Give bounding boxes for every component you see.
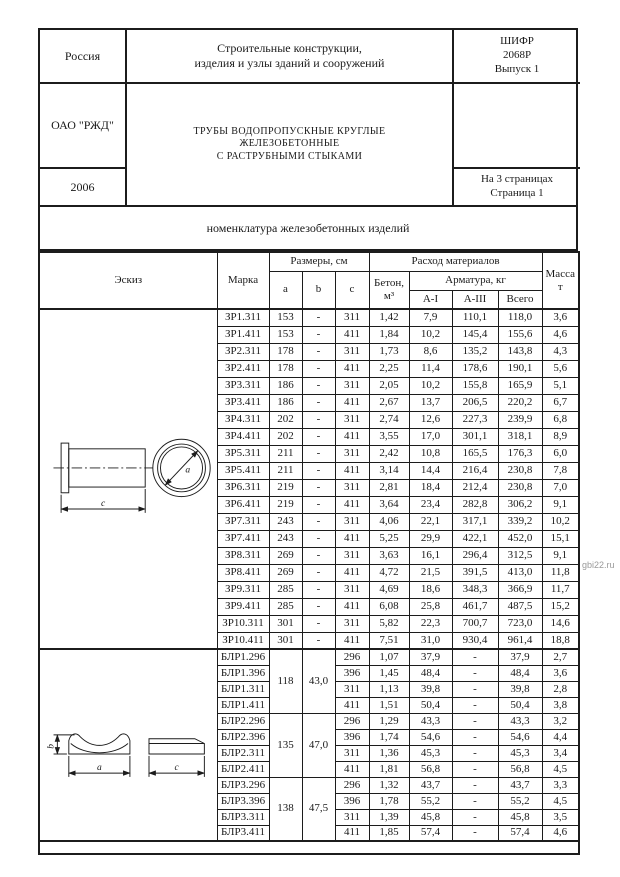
concrete-cell: 1,42 <box>369 309 409 326</box>
mass-unit: т <box>544 281 578 294</box>
total-cell: 961,4 <box>498 632 542 649</box>
ai-cell: 18,4 <box>409 479 452 496</box>
concrete-cell: 3,14 <box>369 462 409 479</box>
mass-cell: 4,5 <box>542 761 579 777</box>
total-cell: 312,5 <box>498 547 542 564</box>
mark-cell: ЗР3.311 <box>217 377 269 394</box>
ai-cell: 23,4 <box>409 496 452 513</box>
ai-cell: 10,8 <box>409 445 452 462</box>
col-header-concrete: Бетон, м³ <box>369 271 409 309</box>
saddle-height-label: b <box>46 743 57 748</box>
c-cell: 296 <box>335 713 369 729</box>
c-cell: 411 <box>335 462 369 479</box>
classification-line: изделия и узлы зданий и сооружений <box>195 56 385 71</box>
section-title: номенклатура железобетонных изделий <box>207 221 410 236</box>
pages-line: Страница 1 <box>490 187 543 201</box>
a-cell: 219 <box>269 479 302 496</box>
classification-cell: Строительные конструкции, изделия и узлы… <box>127 30 454 84</box>
b-cell: - <box>302 428 335 445</box>
mark-cell: БЛР1.296 <box>217 649 269 665</box>
mass-cell: 3,5 <box>542 809 579 825</box>
col-header-materials: Расход материалов <box>369 252 542 271</box>
aiii-cell: 422,1 <box>452 530 498 547</box>
c-cell: 311 <box>335 745 369 761</box>
aiii-cell: 317,1 <box>452 513 498 530</box>
mass-cell: 14,6 <box>542 615 579 632</box>
concrete-cell: 1,13 <box>369 681 409 697</box>
mark-cell: ЗР10.411 <box>217 632 269 649</box>
mass-cell: 5,1 <box>542 377 579 394</box>
total-cell: 43,7 <box>498 777 542 793</box>
total-cell: 55,2 <box>498 793 542 809</box>
concrete-cell: 1,78 <box>369 793 409 809</box>
aiii-cell: 301,1 <box>452 428 498 445</box>
a-cell: 202 <box>269 428 302 445</box>
total-cell: 43,3 <box>498 713 542 729</box>
b-cell: - <box>302 564 335 581</box>
mark-cell: ЗР9.311 <box>217 581 269 598</box>
c-cell: 311 <box>335 377 369 394</box>
mass-cell: 2,7 <box>542 649 579 665</box>
c-cell: 396 <box>335 793 369 809</box>
a-cell: 243 <box>269 513 302 530</box>
mass-cell: 7,8 <box>542 462 579 479</box>
sketch-saddle-cell: b a c <box>39 649 217 841</box>
aiii-cell: 155,8 <box>452 377 498 394</box>
b-cell: - <box>302 411 335 428</box>
mass-cell: 11,8 <box>542 564 579 581</box>
ai-cell: 17,0 <box>409 428 452 445</box>
col-header-mark: Марка <box>217 252 269 309</box>
pipe-diameter-label: a <box>186 464 191 475</box>
mark-cell: ЗР2.311 <box>217 343 269 360</box>
header-row: Эскиз Марка Размеры, см Расход материало… <box>39 252 579 271</box>
a-cell: 186 <box>269 394 302 411</box>
mark-cell: ЗР3.411 <box>217 394 269 411</box>
total-cell: 143,8 <box>498 343 542 360</box>
b-cell: - <box>302 462 335 479</box>
b-cell: - <box>302 377 335 394</box>
mass-cell: 4,3 <box>542 343 579 360</box>
c-cell: 411 <box>335 598 369 615</box>
mass-cell: 3,6 <box>542 309 579 326</box>
total-cell: 366,9 <box>498 581 542 598</box>
aiii-cell: - <box>452 681 498 697</box>
cipher-line: Выпуск 1 <box>495 63 540 77</box>
mass-cell: 4,5 <box>542 793 579 809</box>
bottom-filler <box>39 841 579 854</box>
mark-cell: ЗР1.311 <box>217 309 269 326</box>
c-cell: 311 <box>335 513 369 530</box>
ai-cell: 50,4 <box>409 697 452 713</box>
total-cell: 239,9 <box>498 411 542 428</box>
ai-cell: 55,2 <box>409 793 452 809</box>
concrete-cell: 2,25 <box>369 360 409 377</box>
mass-label: Масса <box>544 268 578 281</box>
total-cell: 176,3 <box>498 445 542 462</box>
table-row: b a c БЛР1.29611843,02961,0737,9-37,92,7 <box>39 649 579 665</box>
country-label: Россия <box>65 49 100 64</box>
mark-cell: БЛР3.311 <box>217 809 269 825</box>
concrete-cell: 1,07 <box>369 649 409 665</box>
total-cell: 220,2 <box>498 394 542 411</box>
ai-cell: 13,7 <box>409 394 452 411</box>
total-cell: 306,2 <box>498 496 542 513</box>
country-cell: Россия <box>40 30 127 84</box>
mark-cell: БЛР2.396 <box>217 729 269 745</box>
concrete-cell: 3,55 <box>369 428 409 445</box>
b-cell: - <box>302 479 335 496</box>
concrete-label: Бетон, <box>371 277 408 290</box>
aiii-cell: 391,5 <box>452 564 498 581</box>
c-cell: 311 <box>335 411 369 428</box>
empty-cell <box>454 84 580 169</box>
mass-cell: 15,2 <box>542 598 579 615</box>
mark-cell: ЗР5.311 <box>217 445 269 462</box>
ai-cell: 12,6 <box>409 411 452 428</box>
mass-cell: 9,1 <box>542 496 579 513</box>
aiii-cell: 700,7 <box>452 615 498 632</box>
col-header-dimensions: Размеры, см <box>269 252 369 271</box>
total-cell: 118,0 <box>498 309 542 326</box>
mass-cell: 9,1 <box>542 547 579 564</box>
organization-cell: ОАО "РЖД" <box>40 84 127 169</box>
b-cell: - <box>302 530 335 547</box>
b-cell: - <box>302 598 335 615</box>
b-cell: - <box>302 496 335 513</box>
a-cell: 178 <box>269 343 302 360</box>
b-cell: - <box>302 513 335 530</box>
b-cell: - <box>302 445 335 462</box>
c-cell: 411 <box>335 761 369 777</box>
total-cell: 39,8 <box>498 681 542 697</box>
concrete-cell: 1,73 <box>369 343 409 360</box>
concrete-cell: 6,08 <box>369 598 409 615</box>
aiii-cell: 110,1 <box>452 309 498 326</box>
mark-cell: БЛР2.296 <box>217 713 269 729</box>
concrete-cell: 4,06 <box>369 513 409 530</box>
ai-cell: 39,8 <box>409 681 452 697</box>
c-cell: 411 <box>335 632 369 649</box>
a-cell: 269 <box>269 547 302 564</box>
pipe-length-label: c <box>101 498 106 509</box>
mark-cell: БЛР1.411 <box>217 697 269 713</box>
aiii-cell: - <box>452 729 498 745</box>
pipe-group-rows: c a ЗР1.311153-3111,427,9110,1118,03,6ЗР… <box>39 309 579 649</box>
c-cell: 311 <box>335 615 369 632</box>
c-cell: 411 <box>335 326 369 343</box>
a-cell: 219 <box>269 496 302 513</box>
product-title-line: ТРУБЫ ВОДОПРОПУСКНЫЕ КРУГЛЫЕ <box>193 126 385 139</box>
total-cell: 190,1 <box>498 360 542 377</box>
product-title-line: ЖЕЛЕЗОБЕТОННЫЕ <box>239 138 339 151</box>
col-header-rebar-total: Всего <box>498 290 542 309</box>
mass-cell: 5,6 <box>542 360 579 377</box>
aiii-cell: 135,2 <box>452 343 498 360</box>
aiii-cell: 165,5 <box>452 445 498 462</box>
aiii-cell: 296,4 <box>452 547 498 564</box>
mass-cell: 6,7 <box>542 394 579 411</box>
aiii-cell: 461,7 <box>452 598 498 615</box>
ai-cell: 18,6 <box>409 581 452 598</box>
a-cell: 285 <box>269 598 302 615</box>
mark-cell: ЗР6.311 <box>217 479 269 496</box>
mark-cell: БЛР3.411 <box>217 825 269 841</box>
c-cell: 311 <box>335 445 369 462</box>
mark-cell: ЗР7.311 <box>217 513 269 530</box>
ai-cell: 14,4 <box>409 462 452 479</box>
aiii-cell: 212,4 <box>452 479 498 496</box>
aiii-cell: 145,4 <box>452 326 498 343</box>
product-title-cell: ТРУБЫ ВОДОПРОПУСКНЫЕ КРУГЛЫЕ ЖЕЛЕЗОБЕТОН… <box>127 84 454 205</box>
concrete-cell: 2,81 <box>369 479 409 496</box>
cipher-cell: ШИФР 2068Р Выпуск 1 <box>454 30 580 84</box>
mark-cell: БЛР2.411 <box>217 761 269 777</box>
concrete-cell: 1,85 <box>369 825 409 841</box>
ai-cell: 54,6 <box>409 729 452 745</box>
c-cell: 411 <box>335 530 369 547</box>
total-cell: 45,8 <box>498 809 542 825</box>
product-title-line: С РАСТРУБНЫМИ СТЫКАМИ <box>217 151 363 164</box>
mass-cell: 6,8 <box>542 411 579 428</box>
mark-cell: ЗР8.311 <box>217 547 269 564</box>
b-cell: 43,0 <box>302 649 335 713</box>
concrete-cell: 1,81 <box>369 761 409 777</box>
ai-cell: 16,1 <box>409 547 452 564</box>
ai-cell: 56,8 <box>409 761 452 777</box>
mass-cell: 10,2 <box>542 513 579 530</box>
title-block: Россия Строительные конструкции, изделия… <box>38 28 578 207</box>
concrete-cell: 5,82 <box>369 615 409 632</box>
concrete-cell: 5,25 <box>369 530 409 547</box>
ai-cell: 48,4 <box>409 665 452 681</box>
mass-cell: 3,4 <box>542 745 579 761</box>
mass-cell: 6,0 <box>542 445 579 462</box>
saddle-length-label: c <box>175 762 180 773</box>
b-cell: - <box>302 615 335 632</box>
cipher-line: 2068Р <box>503 49 531 63</box>
mark-cell: БЛР3.296 <box>217 777 269 793</box>
block-group-rows: b a c БЛР1.29611843,02961,0737,9-37,92,7… <box>39 649 579 841</box>
sketch-pipe-cell: c a <box>39 309 217 649</box>
concrete-cell: 2,42 <box>369 445 409 462</box>
aiii-cell: 930,4 <box>452 632 498 649</box>
table-header: Эскиз Марка Размеры, см Расход материало… <box>39 252 579 309</box>
col-header-mass: Масса т <box>542 252 579 309</box>
concrete-cell: 7,51 <box>369 632 409 649</box>
aiii-cell: - <box>452 665 498 681</box>
mass-cell: 2,8 <box>542 681 579 697</box>
concrete-cell: 1,45 <box>369 665 409 681</box>
year-label: 2006 <box>71 180 95 195</box>
aiii-cell: - <box>452 777 498 793</box>
filler-cell <box>39 841 579 854</box>
total-cell: 165,9 <box>498 377 542 394</box>
concrete-cell: 2,67 <box>369 394 409 411</box>
c-cell: 396 <box>335 665 369 681</box>
c-cell: 411 <box>335 496 369 513</box>
aiii-cell: 348,3 <box>452 581 498 598</box>
concrete-cell: 3,63 <box>369 547 409 564</box>
ai-cell: 37,9 <box>409 649 452 665</box>
mass-cell: 18,8 <box>542 632 579 649</box>
col-header-rebar-ai: А-I <box>409 290 452 309</box>
concrete-cell: 4,69 <box>369 581 409 598</box>
b-cell: - <box>302 326 335 343</box>
aiii-cell: - <box>452 761 498 777</box>
concrete-cell: 1,74 <box>369 729 409 745</box>
a-cell: 211 <box>269 445 302 462</box>
mark-cell: ЗР1.411 <box>217 326 269 343</box>
ai-cell: 45,8 <box>409 809 452 825</box>
b-cell: - <box>302 360 335 377</box>
mark-cell: ЗР9.411 <box>217 598 269 615</box>
mass-cell: 3,3 <box>542 777 579 793</box>
c-cell: 411 <box>335 428 369 445</box>
total-cell: 45,3 <box>498 745 542 761</box>
document-content: Россия Строительные конструкции, изделия… <box>38 28 578 855</box>
saddle-sketch-drawing: b a c <box>42 691 214 796</box>
aiii-cell: - <box>452 713 498 729</box>
mark-cell: БЛР3.396 <box>217 793 269 809</box>
a-cell: 243 <box>269 530 302 547</box>
mark-cell: ЗР10.311 <box>217 615 269 632</box>
b-cell: - <box>302 394 335 411</box>
col-header-sketch: Эскиз <box>39 252 217 309</box>
b-cell: - <box>302 547 335 564</box>
ai-cell: 22,3 <box>409 615 452 632</box>
aiii-cell: 282,8 <box>452 496 498 513</box>
aiii-cell: 206,5 <box>452 394 498 411</box>
mass-cell: 8,9 <box>542 428 579 445</box>
total-cell: 54,6 <box>498 729 542 745</box>
aiii-cell: 227,3 <box>452 411 498 428</box>
total-cell: 339,2 <box>498 513 542 530</box>
col-header-c: c <box>335 271 369 309</box>
b-cell: - <box>302 309 335 326</box>
aiii-cell: - <box>452 809 498 825</box>
concrete-cell: 1,39 <box>369 809 409 825</box>
mass-cell: 3,2 <box>542 713 579 729</box>
concrete-cell: 4,72 <box>369 564 409 581</box>
total-cell: 230,8 <box>498 479 542 496</box>
col-header-a: a <box>269 271 302 309</box>
total-cell: 57,4 <box>498 825 542 841</box>
c-cell: 311 <box>335 479 369 496</box>
pipe-sketch-drawing: c a <box>42 420 214 535</box>
total-cell: 48,4 <box>498 665 542 681</box>
products-table: Эскиз Марка Размеры, см Расход материало… <box>38 251 580 855</box>
ai-cell: 11,4 <box>409 360 452 377</box>
a-cell: 153 <box>269 326 302 343</box>
mark-cell: ЗР5.411 <box>217 462 269 479</box>
c-cell: 311 <box>335 309 369 326</box>
concrete-cell: 1,84 <box>369 326 409 343</box>
ai-cell: 31,0 <box>409 632 452 649</box>
ai-cell: 29,9 <box>409 530 452 547</box>
organization-label: ОАО "РЖД" <box>51 118 114 133</box>
b-cell: - <box>302 581 335 598</box>
saddle-width-label: a <box>97 762 102 773</box>
ai-cell: 7,9 <box>409 309 452 326</box>
a-cell: 301 <box>269 632 302 649</box>
total-cell: 452,0 <box>498 530 542 547</box>
concrete-cell: 2,74 <box>369 411 409 428</box>
a-cell: 285 <box>269 581 302 598</box>
a-cell: 118 <box>269 649 302 713</box>
a-cell: 202 <box>269 411 302 428</box>
c-cell: 311 <box>335 547 369 564</box>
cipher-line: ШИФР <box>500 35 534 49</box>
aiii-cell: - <box>452 825 498 841</box>
b-cell: - <box>302 632 335 649</box>
aiii-cell: 216,4 <box>452 462 498 479</box>
concrete-cell: 1,29 <box>369 713 409 729</box>
ai-cell: 21,5 <box>409 564 452 581</box>
col-header-rebar-aiii: А-III <box>452 290 498 309</box>
total-cell: 56,8 <box>498 761 542 777</box>
mark-cell: ЗР2.411 <box>217 360 269 377</box>
mass-cell: 7,0 <box>542 479 579 496</box>
concrete-unit: м³ <box>371 290 408 303</box>
c-cell: 411 <box>335 825 369 841</box>
ai-cell: 57,4 <box>409 825 452 841</box>
col-header-rebar: Арматура, кг <box>409 271 542 290</box>
a-cell: 138 <box>269 777 302 841</box>
mass-cell: 4,4 <box>542 729 579 745</box>
mass-cell: 3,8 <box>542 697 579 713</box>
ai-cell: 8,6 <box>409 343 452 360</box>
c-cell: 296 <box>335 777 369 793</box>
ai-cell: 43,7 <box>409 777 452 793</box>
mark-cell: БЛР2.311 <box>217 745 269 761</box>
a-cell: 186 <box>269 377 302 394</box>
total-cell: 318,1 <box>498 428 542 445</box>
classification-line: Строительные конструкции, <box>217 41 362 56</box>
mark-cell: ЗР6.411 <box>217 496 269 513</box>
c-cell: 311 <box>335 809 369 825</box>
mass-cell: 3,6 <box>542 665 579 681</box>
filler-row <box>39 841 579 854</box>
total-cell: 155,6 <box>498 326 542 343</box>
mark-cell: БЛР1.396 <box>217 665 269 681</box>
pages-line: На 3 страницах <box>481 173 553 187</box>
b-cell: - <box>302 343 335 360</box>
a-cell: 211 <box>269 462 302 479</box>
total-cell: 487,5 <box>498 598 542 615</box>
total-cell: 37,9 <box>498 649 542 665</box>
mark-cell: ЗР4.411 <box>217 428 269 445</box>
aiii-cell: - <box>452 697 498 713</box>
mass-cell: 4,6 <box>542 825 579 841</box>
ai-cell: 25,8 <box>409 598 452 615</box>
c-cell: 311 <box>335 581 369 598</box>
ai-cell: 10,2 <box>409 326 452 343</box>
year-cell: 2006 <box>40 169 127 205</box>
total-cell: 723,0 <box>498 615 542 632</box>
watermark-text: gbi22.ru <box>582 560 615 570</box>
c-cell: 411 <box>335 564 369 581</box>
mark-cell: БЛР1.311 <box>217 681 269 697</box>
document-sheet: Россия Строительные конструкции, изделия… <box>0 0 620 877</box>
mark-cell: ЗР8.411 <box>217 564 269 581</box>
col-header-b: b <box>302 271 335 309</box>
aiii-cell: - <box>452 793 498 809</box>
c-cell: 396 <box>335 729 369 745</box>
a-cell: 135 <box>269 713 302 777</box>
section-title-band: номенклатура железобетонных изделий <box>38 207 578 251</box>
ai-cell: 45,3 <box>409 745 452 761</box>
